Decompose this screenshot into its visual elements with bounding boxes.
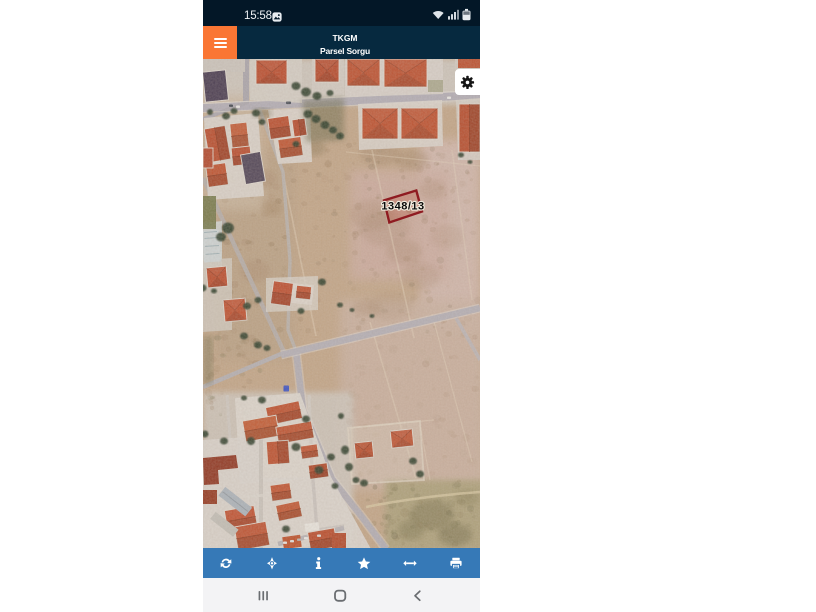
svg-text:1348/13: 1348/13 (381, 201, 424, 213)
